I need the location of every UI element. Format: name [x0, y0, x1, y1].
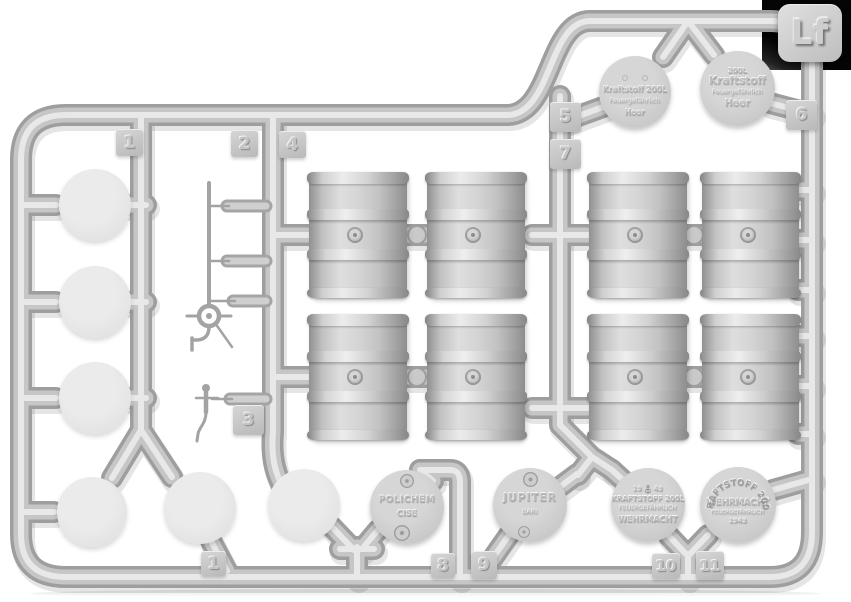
- plain-drum-lid: [268, 469, 340, 541]
- part-number-tag-10: 10: [652, 553, 680, 579]
- lid-text-line: POLICHEM: [379, 495, 436, 505]
- drum-bung: [627, 369, 643, 385]
- drum-hoop: [587, 249, 689, 260]
- lid-text-line: KRAFTSTOFF 200L: [612, 496, 685, 504]
- pump-rod-part: [187, 183, 235, 399]
- plain-drum-lid: [57, 477, 127, 547]
- part-number-tag-1b: 1: [201, 551, 226, 576]
- fuel-drum-half: [309, 314, 407, 440]
- plain-drum-lid: [59, 169, 131, 241]
- part-number-tag-4: 4: [279, 131, 306, 158]
- fuel-drum-half: [427, 172, 525, 298]
- lid-bung-ring: [400, 474, 414, 488]
- drum-bung: [465, 227, 481, 243]
- part-number-tag-9: 9: [471, 551, 497, 579]
- drum-hoop: [425, 249, 527, 260]
- fuel-drum-half: [702, 172, 799, 298]
- drum-hoop: [700, 209, 801, 220]
- lid-year-left: 19: [633, 486, 642, 493]
- spigot-part: [196, 384, 218, 441]
- part-number-tag-2: 2: [231, 130, 258, 157]
- part-number-tag-7: 7: [550, 139, 581, 169]
- drum-hoop: [425, 351, 527, 362]
- fuel-drum-half: [589, 172, 687, 298]
- drum-hoop: [307, 209, 409, 220]
- drum-rim: [307, 430, 409, 440]
- lid-text-line: WEHRMACHT: [618, 516, 677, 525]
- lid-text-line: Feuergefährlich: [712, 89, 763, 96]
- sprue-code-plate: Lf: [778, 4, 842, 62]
- lid-text-line: Kraftstoff 200L: [603, 86, 667, 94]
- drum-hoop: [425, 391, 527, 402]
- drum-bung: [740, 369, 756, 385]
- plain-drum-lid: [59, 362, 131, 434]
- drum-hoop: [700, 351, 801, 362]
- lid-text-line: JUPITER: [503, 493, 556, 505]
- drum-hoop: [700, 391, 801, 402]
- fuel-drum-half: [427, 314, 525, 440]
- drum-rim: [700, 172, 801, 184]
- drum-lid-kriegsmarine-wehrmacht: 19 43 KRAFTSTOFF 200L FEUERGEFÄHRLICH WE…: [611, 468, 685, 542]
- sprue-photo: 1 2 4 5 7 6 3 1 8 9 10 11 Kraftstoff 200…: [0, 0, 851, 602]
- part-number-tag-6: 6: [786, 100, 817, 130]
- fuel-drum-half: [309, 172, 407, 298]
- lid-bung-ring: [523, 472, 538, 487]
- drum-hoop: [700, 249, 801, 260]
- drum-rim: [587, 172, 689, 184]
- drum-rim: [307, 172, 409, 184]
- lid-year-right: 43: [654, 486, 663, 493]
- lid-text-line: Kraftstoff: [709, 76, 766, 88]
- plain-drum-lid: [59, 266, 131, 338]
- drum-hoop: [425, 209, 527, 220]
- drum-rim: [587, 314, 689, 326]
- drum-bung: [347, 227, 363, 243]
- drum-hoop: [587, 391, 689, 402]
- lid-bung-ring: [518, 526, 530, 538]
- lid-text-line: Feuergefährlich: [610, 98, 661, 105]
- fuel-drum-half: [589, 314, 687, 440]
- drum-bung: [627, 227, 643, 243]
- anchor-icon: [644, 485, 652, 494]
- drum-bung: [465, 369, 481, 385]
- lid-text-line: CISE: [397, 510, 417, 519]
- drum-rim: [700, 430, 801, 440]
- drum-rim: [700, 288, 801, 298]
- drum-bung: [347, 369, 363, 385]
- lid-stamp-marks: [615, 67, 655, 85]
- drum-lid-kraftstoff-heer-large: 200L Kraftstoff Feuergefährlich Heer: [700, 51, 775, 126]
- lid-arc-text: KRAFTSTOFF 200L: [700, 467, 772, 511]
- drum-hoop: [307, 391, 409, 402]
- lid-bung-ring: [394, 525, 410, 541]
- drum-lid-polichem: POLICHEM CISE: [370, 470, 444, 544]
- drum-rim: [425, 288, 527, 298]
- drum-lid-jupiter: JUPITER BARI: [493, 468, 567, 542]
- svg-text:KRAFTSTOFF 200L: KRAFTSTOFF 200L: [700, 467, 772, 511]
- lid-text-line: Heer: [725, 99, 751, 110]
- plain-drum-lid: [164, 472, 236, 544]
- part-number-tag-1: 1: [116, 129, 143, 156]
- drum-rim: [425, 172, 527, 184]
- lid-year-row: 19 43: [633, 485, 663, 494]
- drum-rim: [307, 314, 409, 326]
- drum-hoop: [587, 209, 689, 220]
- drum-rim: [587, 288, 689, 298]
- drum-rim: [425, 314, 527, 326]
- lid-text-line: FEUERGEFÄHRLICH: [619, 506, 677, 513]
- part-number-tag-8: 8: [431, 553, 455, 578]
- part-number-tag-5: 5: [550, 102, 581, 132]
- drum-rim: [307, 288, 409, 298]
- drum-lid-wehrmacht: KRAFTSTOFF 200L WEHRMACHT FEUERGEFÄHRLIC…: [700, 467, 776, 543]
- fuel-drum-half: [702, 314, 799, 440]
- drum-bung: [740, 227, 756, 243]
- lid-arc-text-svg: KRAFTSTOFF 200L: [700, 467, 776, 543]
- lid-text-line: BARI: [522, 509, 537, 516]
- drum-rim: [700, 314, 801, 326]
- drum-hoop: [307, 249, 409, 260]
- part-number-tag-11: 11: [696, 551, 724, 580]
- lid-text-line: Heer: [625, 109, 645, 117]
- drum-rim: [587, 430, 689, 440]
- drum-hoop: [587, 351, 689, 362]
- drum-rim: [425, 430, 527, 440]
- drum-hoop: [307, 351, 409, 362]
- part-number-tag-3: 3: [233, 405, 264, 435]
- drum-lid-kraftstoff-heer-small: Kraftstoff 200L Feuergefährlich Heer: [599, 56, 671, 128]
